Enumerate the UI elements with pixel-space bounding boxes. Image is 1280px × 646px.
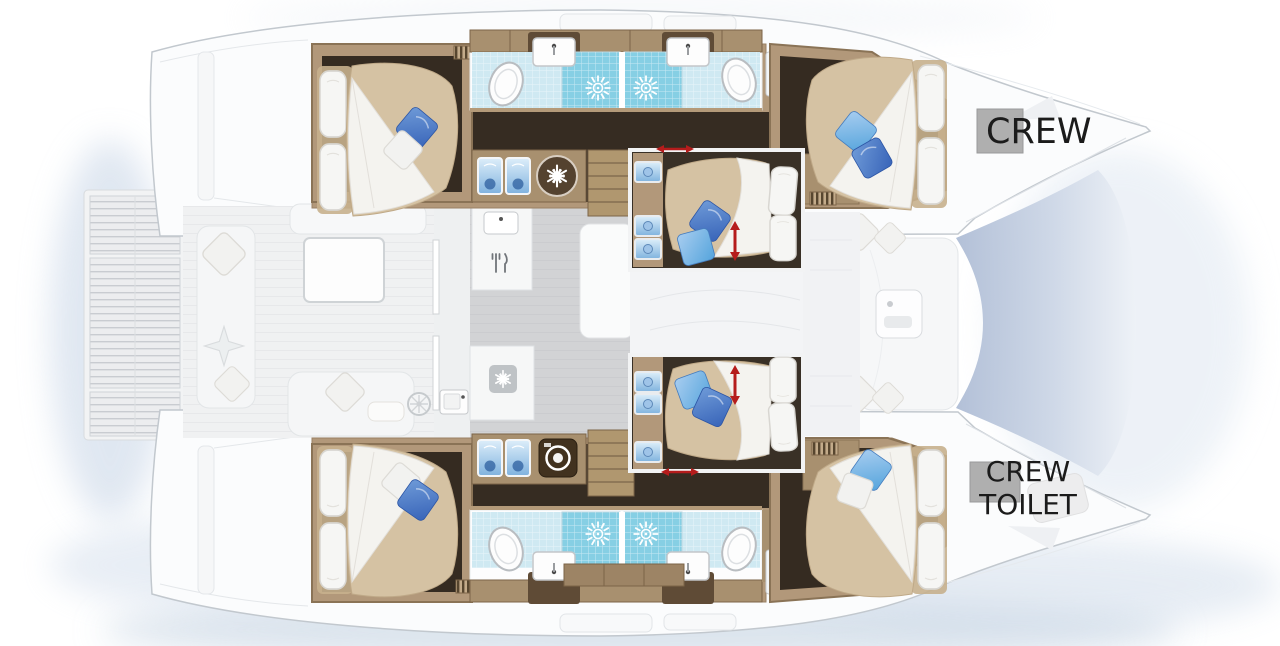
salon-seat-island	[580, 224, 634, 338]
double-bed	[806, 57, 947, 210]
catamaran-floor-plan: CREW CREW TOILET	[0, 0, 1280, 646]
basin-icon	[506, 158, 530, 194]
locker-basin	[635, 239, 661, 259]
double-bed	[317, 444, 458, 597]
starboard-stairs	[588, 430, 634, 496]
sink-icon	[667, 38, 709, 66]
basin-icon	[478, 158, 502, 194]
basin-icon	[478, 440, 502, 476]
basin-icon	[506, 440, 530, 476]
port-bathrooms	[470, 30, 762, 112]
floor-plan-canvas: CREW CREW TOILET	[0, 0, 1280, 646]
port-aft-cabin	[312, 44, 480, 216]
port-stairs	[588, 150, 634, 216]
sliding-door-post	[433, 336, 439, 410]
port-vanity	[472, 150, 586, 202]
louver-vent-icon	[812, 442, 838, 455]
double-bed	[317, 63, 458, 216]
center-cabin-forward-port	[630, 145, 803, 270]
locker-basin	[635, 216, 661, 236]
cockpit-table	[304, 238, 384, 302]
port-side-deck	[198, 52, 214, 200]
forward-passage	[803, 212, 860, 436]
center-passage	[630, 270, 803, 355]
starboard-vanity	[472, 434, 586, 484]
center-cabin-forward-starboard	[630, 355, 803, 476]
starboard-aft-cabin	[312, 444, 482, 602]
galley-sink	[484, 212, 518, 234]
crew-cabin-label: CREW	[986, 112, 1091, 152]
locker-basin	[635, 372, 661, 392]
locker-basin	[635, 394, 661, 414]
sink-icon	[533, 38, 575, 66]
forward-console	[876, 290, 922, 338]
bathroom-cabinet	[564, 564, 684, 586]
washer-icon	[539, 439, 577, 477]
starboard-side-deck	[198, 446, 214, 594]
deck-pillow	[368, 402, 404, 421]
crew-toilet-label-line2: TOILET	[978, 488, 1078, 521]
crew-toilet-label-line1: CREW	[986, 455, 1070, 488]
fan-icon	[408, 393, 430, 415]
locker-basin	[635, 442, 661, 462]
trampoline	[956, 170, 1136, 476]
louver-vent-icon	[810, 192, 836, 205]
locker-basin	[635, 162, 661, 182]
starboard-bathrooms	[470, 506, 802, 604]
sliding-door-post	[433, 240, 439, 314]
